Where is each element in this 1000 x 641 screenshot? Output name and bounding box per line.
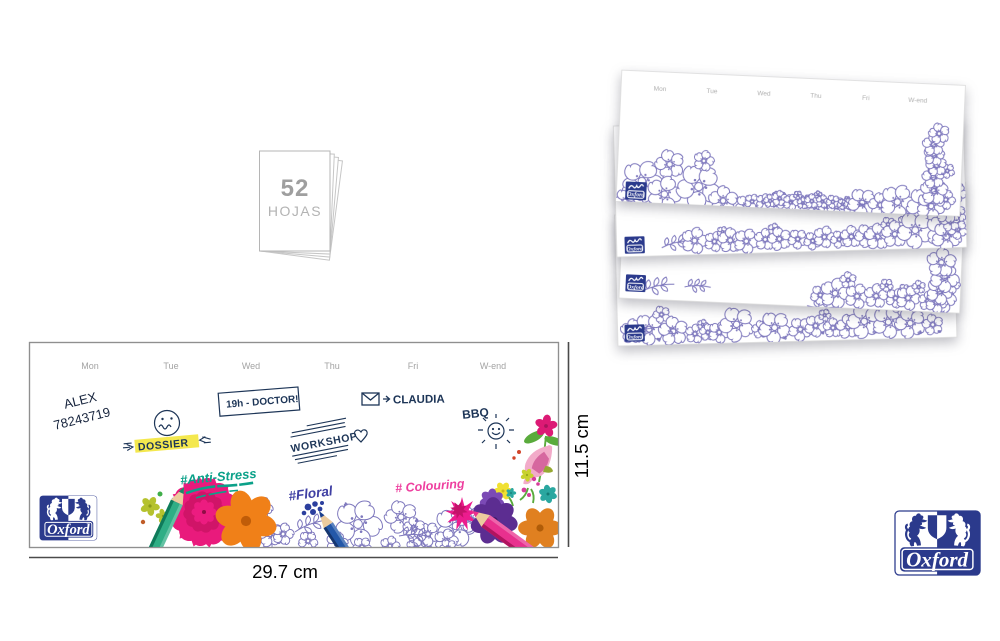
svg-text:Tue: Tue xyxy=(163,361,178,371)
svg-text:Oxford: Oxford xyxy=(906,548,968,572)
svg-text:CLAUDIA: CLAUDIA xyxy=(393,394,445,407)
svg-text:Oxford: Oxford xyxy=(627,246,644,252)
svg-text:Fri: Fri xyxy=(408,361,419,371)
svg-text:Mon: Mon xyxy=(81,361,99,371)
svg-text:Thu: Thu xyxy=(810,93,822,101)
svg-text:Oxford: Oxford xyxy=(627,334,644,340)
svg-text:52: 52 xyxy=(281,175,310,202)
svg-text:BBQ: BBQ xyxy=(461,405,489,422)
svg-text:Tue: Tue xyxy=(706,88,718,95)
svg-text:Wed: Wed xyxy=(757,90,771,98)
svg-text:Thu: Thu xyxy=(324,361,340,371)
svg-text:W-end: W-end xyxy=(480,361,506,371)
svg-text:Fri: Fri xyxy=(862,95,870,102)
svg-text:11.5 cm: 11.5 cm xyxy=(571,414,592,478)
svg-text:29.7 cm: 29.7 cm xyxy=(252,561,318,582)
svg-text:Wed: Wed xyxy=(242,361,260,371)
svg-text:W-end: W-end xyxy=(908,97,928,105)
svg-text:HOJAS: HOJAS xyxy=(268,203,322,219)
svg-text:Oxford: Oxford xyxy=(627,284,644,291)
svg-text:Oxford: Oxford xyxy=(627,192,644,199)
svg-text:Mon: Mon xyxy=(654,86,667,94)
svg-text:Oxford: Oxford xyxy=(47,522,90,538)
